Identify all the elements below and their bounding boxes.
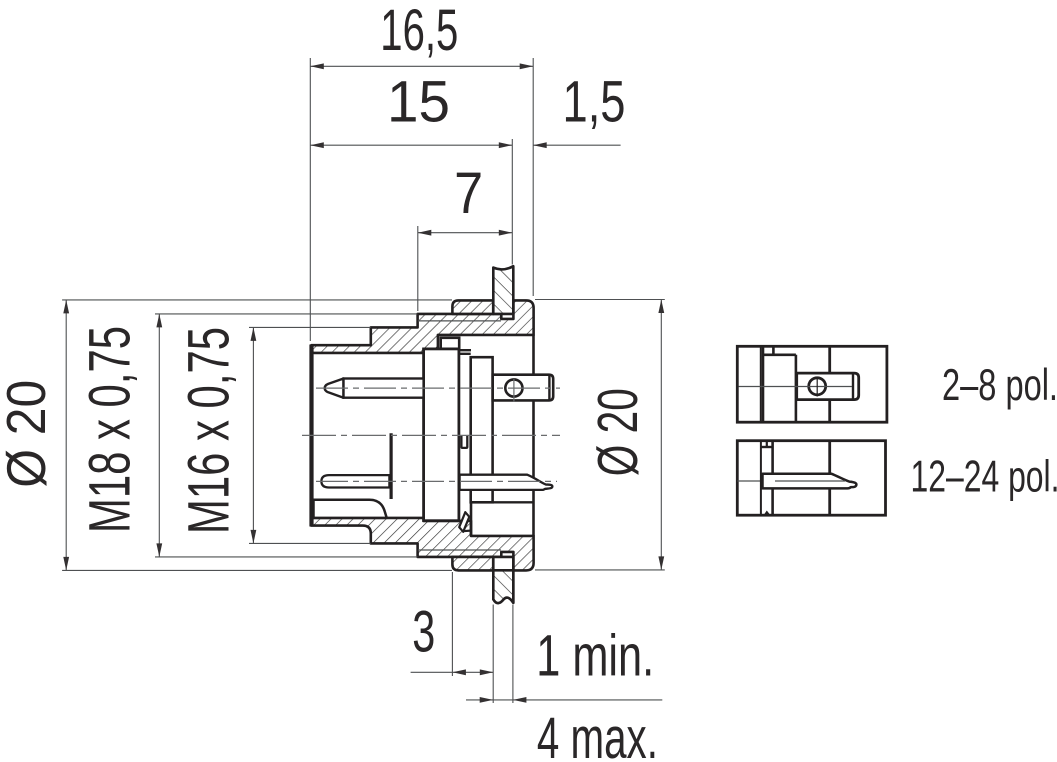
svg-text:Ø 20: Ø 20 <box>586 388 650 476</box>
svg-text:M18 x 0,75: M18 x 0,75 <box>78 326 143 533</box>
svg-text:M16 x 0,75: M16 x 0,75 <box>177 327 242 534</box>
svg-text:16,5: 16,5 <box>380 0 458 63</box>
svg-text:4 max.: 4 max. <box>537 706 658 762</box>
svg-text:1,5: 1,5 <box>563 69 626 134</box>
svg-text:1 min.: 1 min. <box>536 623 654 688</box>
svg-text:15: 15 <box>387 69 450 134</box>
svg-text:12–24 pol.: 12–24 pol. <box>911 452 1057 501</box>
svg-text:Ø 20: Ø 20 <box>0 380 57 488</box>
svg-text:2–8 pol.: 2–8 pol. <box>942 361 1057 410</box>
svg-text:3: 3 <box>412 600 435 665</box>
svg-text:7: 7 <box>454 161 483 226</box>
